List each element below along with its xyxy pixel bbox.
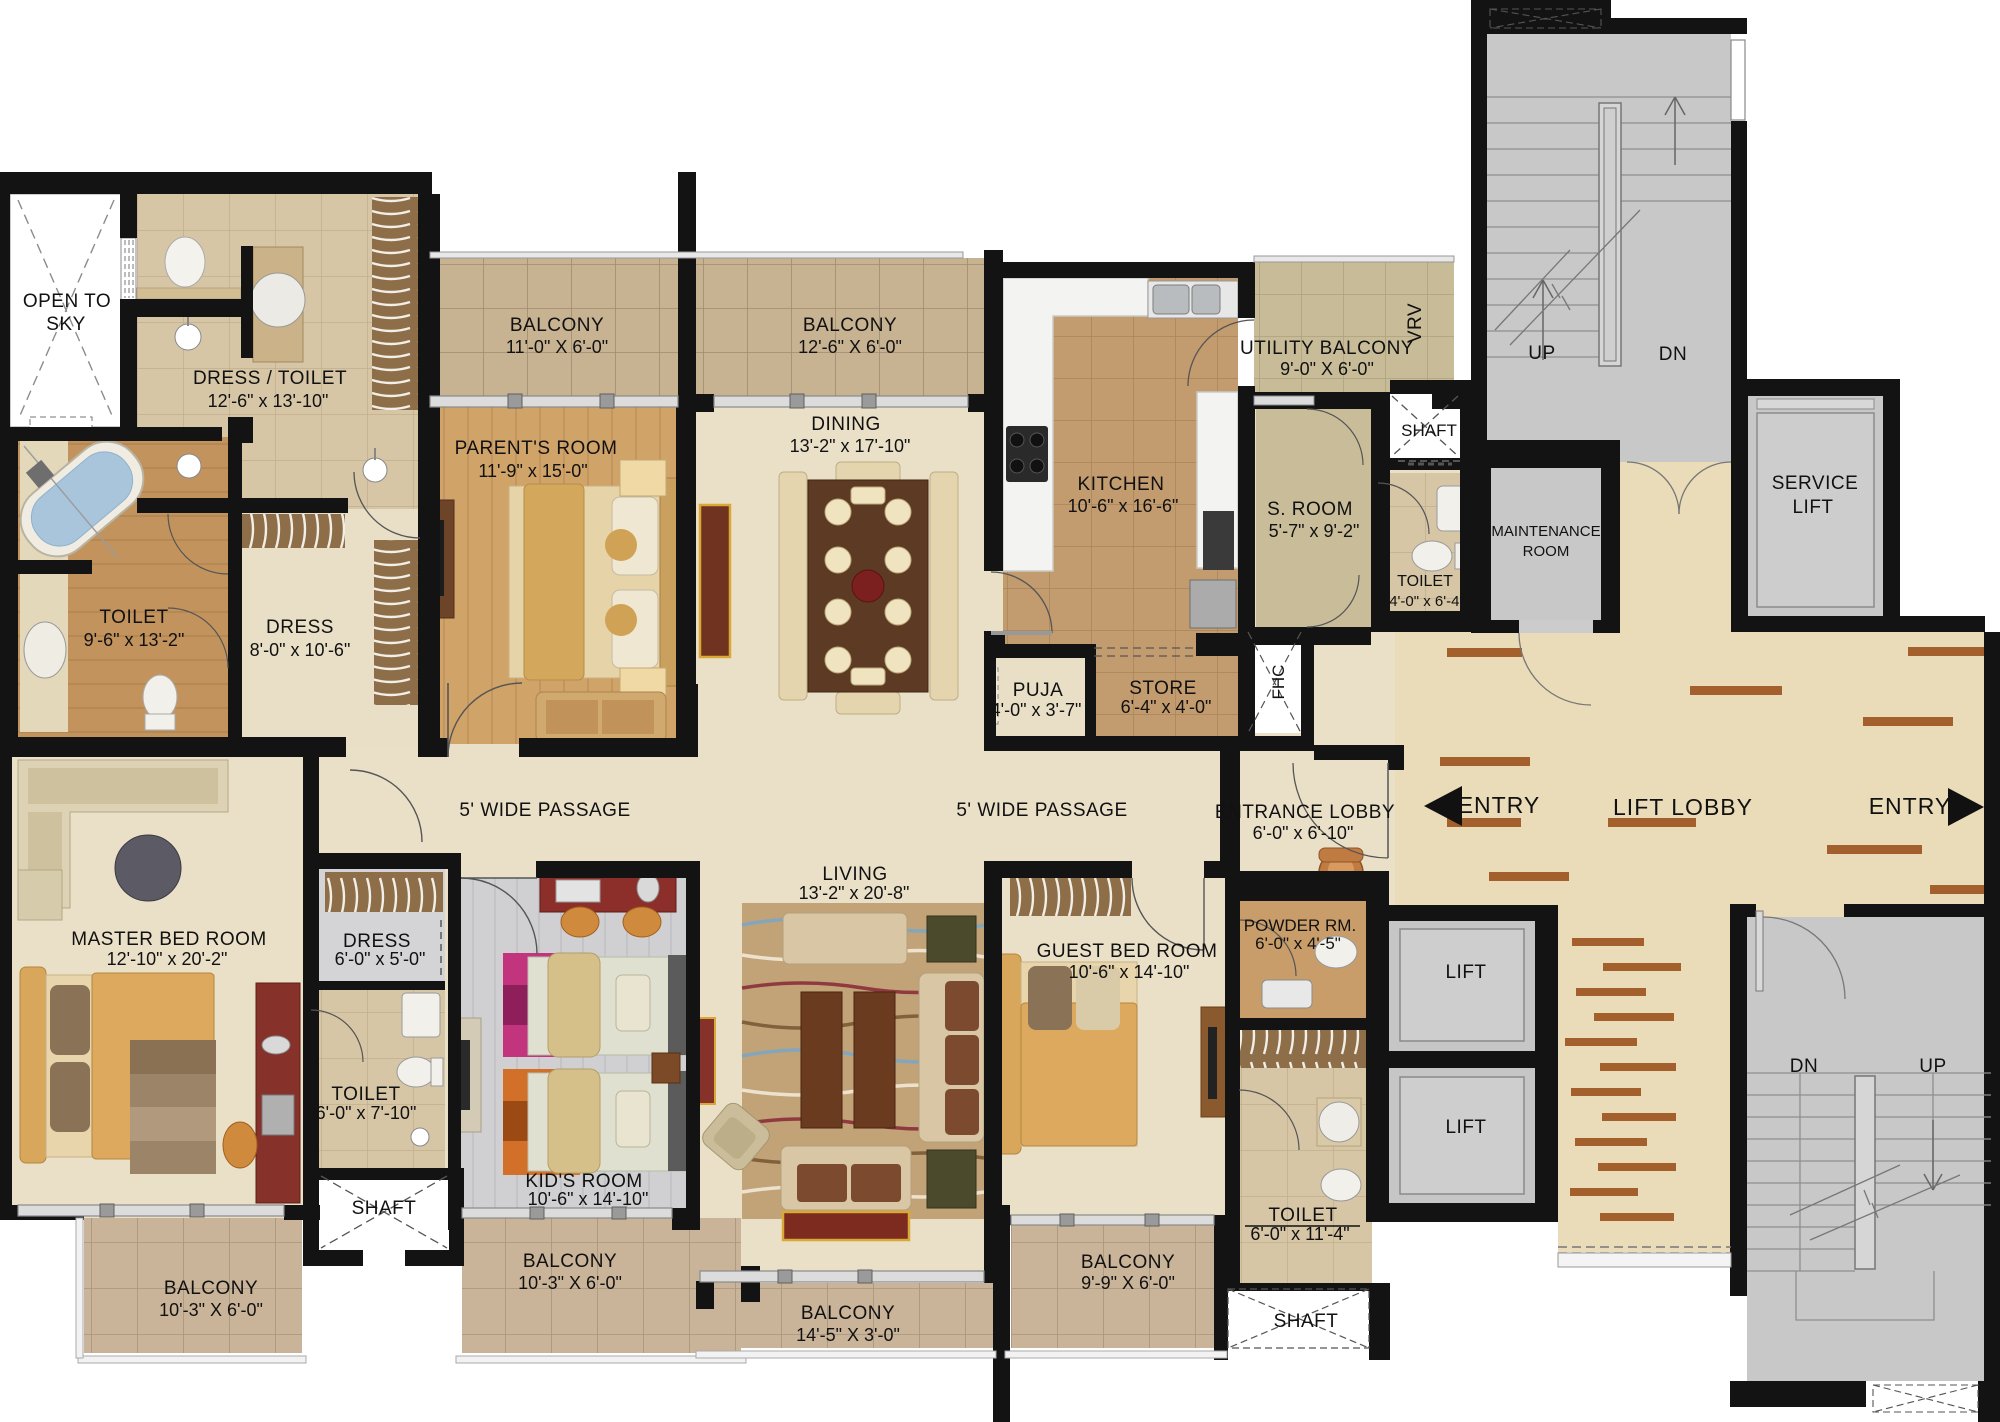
- svg-text:PUJA: PUJA: [1013, 680, 1064, 701]
- svg-text:4'-0" x 3'-7": 4'-0" x 3'-7": [991, 700, 1082, 720]
- svg-text:DRESS / TOILET: DRESS / TOILET: [193, 368, 347, 389]
- svg-text:UTILITY BALCONY: UTILITY BALCONY: [1240, 338, 1414, 359]
- svg-text:BALCONY: BALCONY: [801, 1303, 895, 1324]
- svg-text:10'-3" X 6'-0": 10'-3" X 6'-0": [518, 1273, 622, 1293]
- svg-text:MAINTENANCE: MAINTENANCE: [1491, 523, 1600, 540]
- svg-text:6'-0" x 5'-0": 6'-0" x 5'-0": [335, 949, 426, 969]
- svg-text:KITCHEN: KITCHEN: [1078, 474, 1165, 495]
- svg-text:12'-6" X 6'-0": 12'-6" X 6'-0": [798, 337, 902, 357]
- svg-text:SHAFT: SHAFT: [352, 1198, 417, 1219]
- svg-text:9'-6" x 13'-2": 9'-6" x 13'-2": [84, 630, 185, 650]
- svg-text:PARENT'S ROOM: PARENT'S ROOM: [455, 438, 618, 459]
- svg-text:12'-6" x 13'-10": 12'-6" x 13'-10": [208, 391, 329, 411]
- svg-text:10'-6" x 14'-10": 10'-6" x 14'-10": [528, 1189, 649, 1209]
- svg-text:BALCONY: BALCONY: [164, 1278, 258, 1299]
- svg-text:9'-9" X 6'-0": 9'-9" X 6'-0": [1081, 1273, 1175, 1293]
- svg-text:BALCONY: BALCONY: [523, 1251, 617, 1272]
- svg-text:12'-10" x 20'-2": 12'-10" x 20'-2": [107, 949, 228, 969]
- svg-text:VRV: VRV: [1405, 303, 1426, 343]
- svg-text:13'-2" x 17'-10": 13'-2" x 17'-10": [790, 436, 911, 456]
- svg-text:SERVICE: SERVICE: [1772, 473, 1859, 494]
- svg-text:STORE: STORE: [1129, 678, 1197, 699]
- svg-text:GUEST BED ROOM: GUEST BED ROOM: [1037, 941, 1218, 962]
- svg-text:BALCONY: BALCONY: [1081, 1252, 1175, 1273]
- svg-text:OPEN TO: OPEN TO: [23, 291, 111, 312]
- svg-text:6'-4" x 4'-0": 6'-4" x 4'-0": [1121, 697, 1212, 717]
- svg-text:UP: UP: [1919, 1056, 1946, 1077]
- svg-text:10'-3" X 6'-0": 10'-3" X 6'-0": [159, 1300, 263, 1320]
- svg-text:5' WIDE PASSAGE: 5' WIDE PASSAGE: [459, 800, 630, 821]
- svg-text:SKY: SKY: [46, 314, 86, 335]
- svg-text:LIFT: LIFT: [1792, 497, 1833, 518]
- svg-text:SHAFT: SHAFT: [1401, 421, 1457, 440]
- svg-text:5'-7" x 9'-2": 5'-7" x 9'-2": [1269, 521, 1360, 541]
- svg-text:BALCONY: BALCONY: [510, 315, 604, 336]
- svg-text:6'-0" x 4'-5": 6'-0" x 4'-5": [1255, 934, 1341, 953]
- svg-text:MASTER BED ROOM: MASTER BED ROOM: [71, 929, 266, 950]
- svg-text:4'-0" x 6'-4": 4'-0" x 6'-4": [1389, 593, 1465, 610]
- svg-text:LIFT LOBBY: LIFT LOBBY: [1613, 794, 1753, 820]
- svg-text:14'-5" X 3'-0": 14'-5" X 3'-0": [796, 1325, 900, 1345]
- svg-text:TOILET: TOILET: [1397, 573, 1453, 590]
- svg-text:TOILET: TOILET: [331, 1084, 400, 1105]
- svg-text:ROOM: ROOM: [1523, 543, 1570, 560]
- svg-text:6'-0" x 7'-10": 6'-0" x 7'-10": [316, 1103, 417, 1123]
- svg-text:DN: DN: [1790, 1056, 1818, 1077]
- svg-text:BALCONY: BALCONY: [803, 315, 897, 336]
- svg-text:10'-6" x 14'-10": 10'-6" x 14'-10": [1069, 962, 1190, 982]
- svg-text:SHAFT: SHAFT: [1274, 1311, 1339, 1332]
- svg-text:6'-0" x 6'-10": 6'-0" x 6'-10": [1253, 823, 1354, 843]
- svg-text:9'-0" X 6'-0": 9'-0" X 6'-0": [1280, 359, 1374, 379]
- svg-text:ENTRANCE LOBBY: ENTRANCE LOBBY: [1215, 802, 1395, 823]
- svg-text:DN: DN: [1659, 344, 1687, 365]
- svg-text:DRESS: DRESS: [266, 617, 334, 638]
- svg-text:5' WIDE PASSAGE: 5' WIDE PASSAGE: [956, 800, 1127, 821]
- svg-text:13'-2" x 20'-8": 13'-2" x 20'-8": [799, 883, 910, 903]
- svg-text:DINING: DINING: [811, 414, 881, 435]
- svg-text:8'-0" x 10'-6": 8'-0" x 10'-6": [250, 640, 351, 660]
- svg-text:S. ROOM: S. ROOM: [1267, 499, 1353, 520]
- svg-text:11'-0" X 6'-0": 11'-0" X 6'-0": [506, 337, 608, 357]
- svg-text:LIVING: LIVING: [822, 864, 887, 885]
- svg-text:11'-9" x 15'-0": 11'-9" x 15'-0": [478, 461, 587, 481]
- svg-text:TOILET: TOILET: [99, 607, 168, 628]
- svg-text:10'-6" x 16'-6": 10'-6" x 16'-6": [1068, 496, 1179, 516]
- svg-text:POWDER RM.: POWDER RM.: [1244, 916, 1356, 935]
- svg-text:LIFT: LIFT: [1445, 962, 1486, 983]
- svg-text:ENTRY: ENTRY: [1458, 792, 1541, 818]
- svg-text:LIFT: LIFT: [1445, 1117, 1486, 1138]
- svg-text:ENTRY: ENTRY: [1869, 793, 1952, 819]
- svg-text:UP: UP: [1528, 343, 1555, 364]
- svg-text:6'-0" x 11'-4": 6'-0" x 11'-4": [1250, 1224, 1349, 1244]
- svg-text:TOILET: TOILET: [1268, 1205, 1337, 1226]
- svg-text:FHC: FHC: [1269, 665, 1288, 700]
